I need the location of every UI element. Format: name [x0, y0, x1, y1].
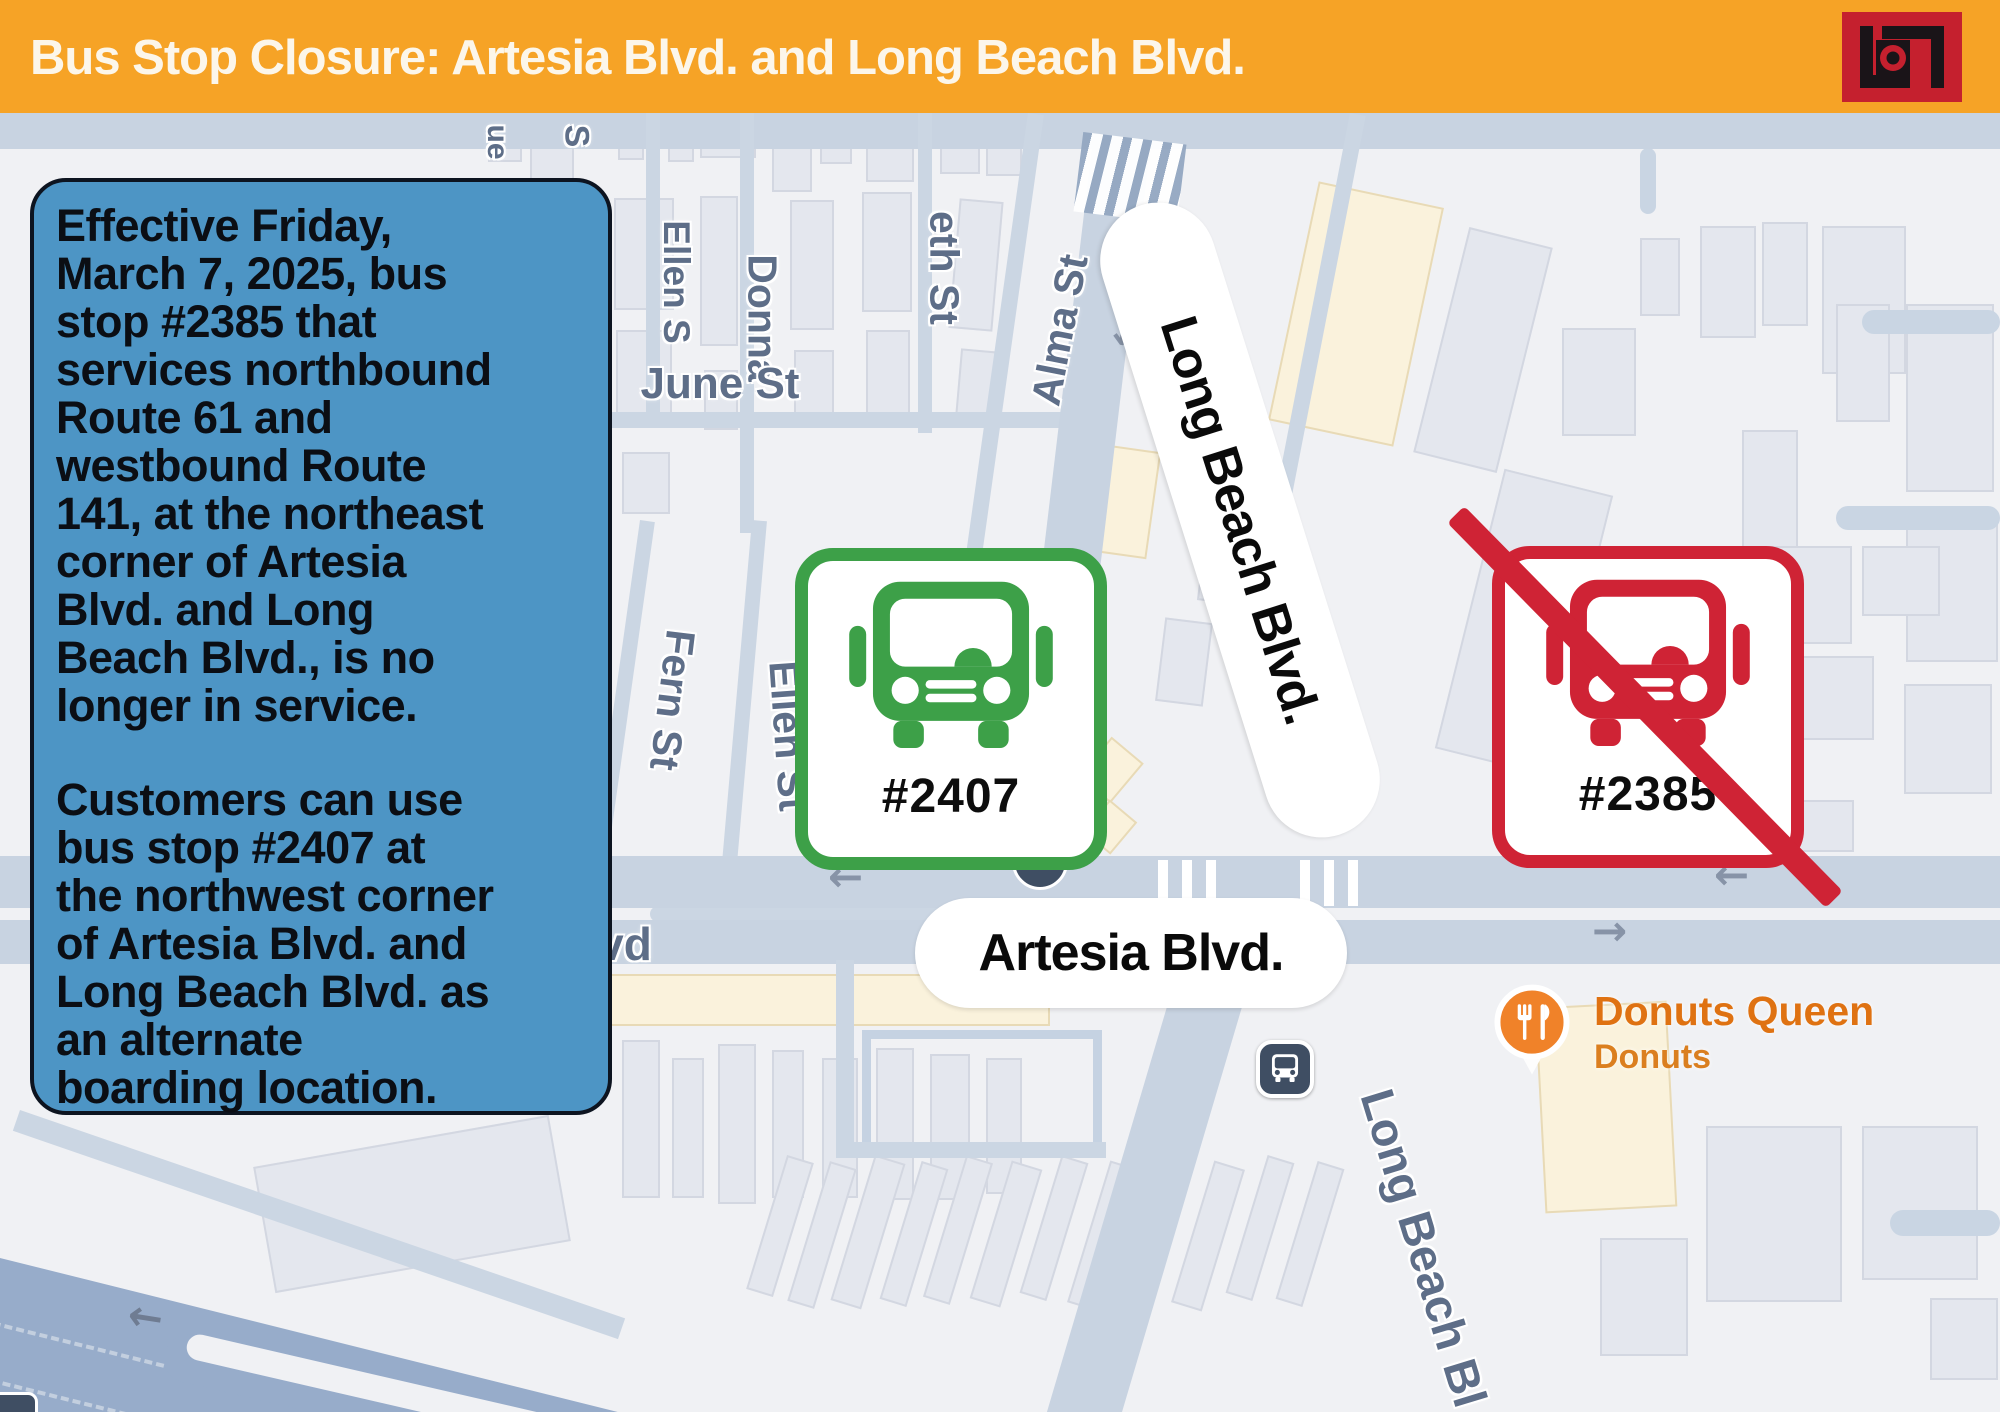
- poi-donuts-queen-category: Donuts: [1594, 1038, 1711, 1077]
- header-bar: Bus Stop Closure: Artesia Blvd. and Long…: [0, 0, 2000, 113]
- map-building: [700, 196, 738, 346]
- road-south-branch: [836, 960, 854, 1150]
- restaurant-pin-icon: [1492, 984, 1572, 1084]
- bus-stop-map-icon-corner: [0, 1392, 38, 1412]
- map-building: [790, 200, 834, 330]
- poi-donuts-queen-pin: [1492, 984, 1572, 1089]
- notice-box: Effective Friday, March 7, 2025, bus sto…: [30, 178, 612, 1115]
- map-building: [718, 1044, 756, 1204]
- map-building: [1862, 1126, 1978, 1280]
- street-label-ellen-s: Ellen S: [655, 220, 697, 343]
- map-building: [1700, 226, 1756, 338]
- crosswalk-east: [1300, 860, 1372, 906]
- map-road-stub: [1836, 506, 2000, 530]
- map-road-stub: [1862, 310, 2000, 334]
- map-building: [1862, 546, 1940, 616]
- street-label-june-st: June St: [641, 359, 800, 409]
- road-pill-artesia-label: Artesia Blvd.: [979, 923, 1284, 983]
- marker-open-stop-2407: #2407: [795, 548, 1107, 870]
- street-label-ue: ue: [480, 124, 514, 159]
- map-building: [1562, 328, 1636, 436]
- arrow-eastbound: →: [1592, 906, 1627, 955]
- map-building: [866, 330, 910, 416]
- map-building: [672, 1058, 704, 1198]
- road-south-horizontal: [836, 1142, 1106, 1158]
- map-building: [622, 1040, 660, 1198]
- poi-donuts-queen-name: Donuts Queen: [1594, 988, 1874, 1035]
- map-building: [1155, 617, 1213, 706]
- map-building: [1640, 238, 1680, 316]
- map-building: [794, 350, 834, 420]
- map-building: [1930, 1298, 1998, 1380]
- flyer-canvas: ← ← → ↓ ← ueSEllen SDonnaeth StAlma StJu…: [0, 0, 2000, 1412]
- notice-paragraph-2: Customers can use bus stop #2407 at the …: [56, 776, 592, 1112]
- map-building: [1413, 227, 1553, 473]
- map-building: [1600, 1238, 1688, 1356]
- map-road-stub: [1890, 1210, 2000, 1236]
- notice-paragraph-1: Effective Friday, March 7, 2025, bus sto…: [56, 202, 592, 730]
- long-beach-transit-logo-icon: [1842, 12, 1962, 102]
- map-building: [1706, 1126, 1842, 1302]
- page-title: Bus Stop Closure: Artesia Blvd. and Long…: [30, 0, 1245, 113]
- bus-icon: [1543, 573, 1753, 763]
- map-parking-lot: [862, 1030, 1102, 1156]
- road-pill-artesia-blvd: Artesia Blvd.: [915, 898, 1347, 1008]
- bus-icon: [846, 575, 1056, 765]
- map-building: [1798, 656, 1874, 740]
- bus-icon: [1268, 1053, 1302, 1085]
- map-road-stub: [1640, 148, 1656, 214]
- bus-stop-map-icon: [1256, 1040, 1314, 1098]
- street-label-fern-st: Fern St: [640, 627, 704, 773]
- map-building: [1762, 222, 1808, 326]
- open-stop-number: #2407: [882, 769, 1020, 824]
- road-top: [0, 113, 2000, 149]
- street-label-eth-st: eth St: [921, 211, 968, 325]
- map-building: [862, 192, 912, 312]
- street-label-s: S: [557, 125, 596, 148]
- map-building: [1904, 684, 1992, 794]
- street-label-long-beach-bl: Long Beach Bl: [1350, 1083, 1499, 1412]
- road-june-st: [600, 412, 1090, 428]
- map-building: [622, 452, 670, 514]
- map-building: [1742, 430, 1798, 554]
